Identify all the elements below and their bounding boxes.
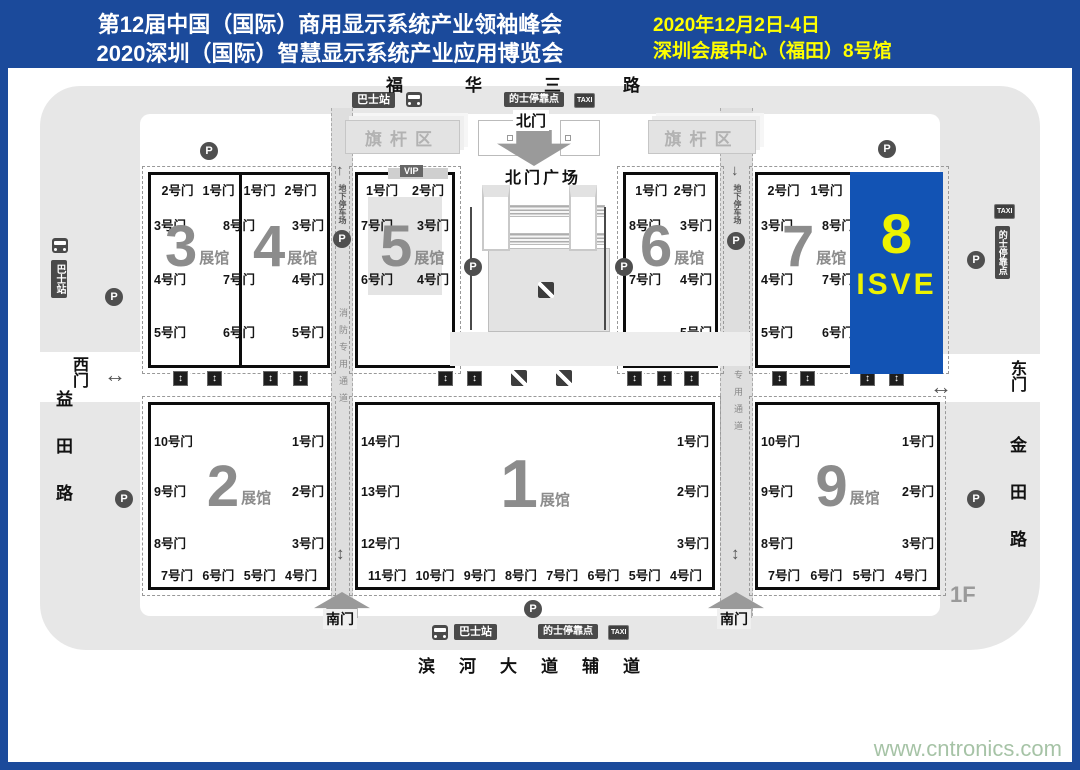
gate-label: 10号门 <box>416 565 455 584</box>
gate-label: 2号门 <box>674 180 706 199</box>
flag-area-west: 旗杆区 <box>345 120 460 154</box>
gate-label: 5号门 <box>853 565 885 584</box>
hall-2: 10号门 9号门 8号门 1号门 2号门 3号门 7号门 6号门 5号门 4号门… <box>148 402 330 590</box>
gate-row-top: 2号门 1号门 1号门 2号门 <box>157 180 321 199</box>
gate-label: 1号门 <box>677 431 709 450</box>
gate-label: 7号门 <box>161 565 193 584</box>
gate-row-bottom: 7号门 6号门 5号门 4号门 <box>161 565 317 584</box>
gate-label: 9号门 <box>464 565 496 584</box>
gate-label: 2号门 <box>285 180 317 199</box>
parking-icon: P <box>464 258 482 276</box>
escalator-icon <box>538 282 554 298</box>
hall-8-highlight: 8 ISVE <box>850 172 943 374</box>
hall-block-3-4: 2号门 1号门 1号门 2号门 3号门 4号门 5号门 8号门 7号门 6号门 … <box>148 172 330 368</box>
gate-label: 1号门 <box>292 431 324 450</box>
escalator-icon <box>511 370 527 386</box>
street-west: 益田路 <box>50 390 75 531</box>
elevator-icon: ↕ <box>657 371 672 386</box>
venue-map: ↑ 地下停车场 P 消防专用通道 ↕ ↓ 地下停车场 P 消防专用通道 ↕ 北门… <box>8 68 1072 762</box>
gate-row-bottom: 7号门 6号门 5号门 4号门 <box>768 565 927 584</box>
gate-label: 6号门 <box>587 565 619 584</box>
gate-label: 4号门 <box>895 565 927 584</box>
gate-row-bottom: 11号门 10号门 9号门 8号门 7号门 6号门 5号门 4号门 <box>368 565 702 584</box>
gate-row-top: 1号门 2号门 <box>632 180 709 199</box>
parking-icon: P <box>967 490 985 508</box>
plaza-base <box>450 332 750 366</box>
elevator-icon: ↕ <box>207 371 222 386</box>
taxi-icon: TAXI <box>994 204 1015 219</box>
parking-icon: P <box>967 251 985 269</box>
gate-label: 9号门 <box>154 481 186 500</box>
street-south: 滨河大道辅道 <box>418 652 664 677</box>
gate-label: 2号门 <box>902 481 934 500</box>
gate-row-top: 1号门 2号门 <box>366 180 444 199</box>
escalator-icon <box>556 370 572 386</box>
fire-lane-label: 消防专用通道 <box>337 308 350 410</box>
plaza-tower <box>569 185 597 251</box>
bus-icon <box>52 238 68 253</box>
elevator-icon: ↕ <box>627 371 642 386</box>
gate-label: 4号门 <box>292 269 324 288</box>
gate-label: 8号门 <box>154 533 186 552</box>
gate-label: 1号门 <box>902 431 934 450</box>
west-gate-label: 西门 <box>66 356 90 388</box>
parking-icon: P <box>727 232 745 250</box>
gate-label: 3号门 <box>902 533 934 552</box>
hall-9: 10号门 9号门 8号门 1号门 2号门 3号门 7号门 6号门 5号门 4号门… <box>755 402 940 590</box>
hall-6-label: 6展馆 <box>640 223 704 271</box>
gate-label: 8号门 <box>761 533 793 552</box>
gate-label: 2号门 <box>162 180 194 199</box>
vip-badge: VIP <box>400 165 423 177</box>
elevator-icon: ↕ <box>173 371 188 386</box>
gate-label: 7号门 <box>546 565 578 584</box>
gate-label: 5号门 <box>761 322 793 341</box>
event-date: 2020年12月2日-4日 <box>653 13 892 39</box>
east-gate-arrow-icon: ↔ <box>930 374 952 400</box>
gate-label: 6号门 <box>202 565 234 584</box>
taxi-stop-badge: 的士停靠点 <box>538 624 598 639</box>
event-venue: 深圳会展中心（福田）8号馆 <box>653 39 892 65</box>
gate-label: 2号门 <box>768 180 800 199</box>
gate-label: 9号门 <box>761 481 793 500</box>
taxi-icon: TAXI <box>608 625 629 640</box>
flag-area-east: 旗杆区 <box>648 120 756 154</box>
hall-2-label: 2展馆 <box>207 463 271 511</box>
elevator-icon: ↕ <box>684 371 699 386</box>
hall-4-label: 4展馆 <box>253 223 317 271</box>
gate-label: 14号门 <box>361 431 400 450</box>
gate-label: 4号门 <box>680 269 712 288</box>
gate-label: 13号门 <box>361 481 400 500</box>
gate-label: 4号门 <box>417 269 449 288</box>
gate-label: 2号门 <box>677 481 709 500</box>
gate-label: 1号门 <box>244 180 276 199</box>
gate-label: 1号门 <box>635 180 667 199</box>
hall-1: 14号门 13号门 12号门 1号门 2号门 3号门 11号门 10号门 9号门… <box>355 402 715 590</box>
underground-parking-label: 地下停车场 <box>732 184 743 224</box>
bus-station-badge: 巴士站 <box>454 624 497 640</box>
hall-5: VIP 1号门 2号门 7号门 6号门 3号门 4号门 5展馆 <box>355 172 455 368</box>
parking-icon: P <box>333 230 351 248</box>
gate-label: 5号门 <box>292 322 324 341</box>
elevator-icon: ↕ <box>293 371 308 386</box>
north-gate-label: 北门 <box>513 110 549 131</box>
south-gate-label: 南门 <box>717 609 751 629</box>
parking-icon: P <box>615 258 633 276</box>
gate-label: 5号门 <box>154 322 186 341</box>
gate-label: 7号门 <box>223 269 255 288</box>
elevator-icon: ↕ <box>467 371 482 386</box>
up-arrow-icon: ↑ <box>336 162 344 179</box>
gate-label: 5号门 <box>244 565 276 584</box>
parking-icon: P <box>115 490 133 508</box>
hall-8-number: 8 <box>881 206 912 262</box>
updown-arrow-icon: ↕ <box>336 544 345 564</box>
event-title-line2: 2020深圳（国际）智慧显示系统产业应用博览会 <box>40 39 620 68</box>
gate-row-top: 2号门 1号门 <box>762 180 848 199</box>
hall-8-isve-label: ISVE <box>856 268 936 302</box>
gate-label: 6号门 <box>810 565 842 584</box>
gate-label: 3号门 <box>677 533 709 552</box>
exhibition-map-page: 第12届中国（国际）商用显示系统产业领袖峰会 2020深圳（国际）智慧显示系统产… <box>0 0 1080 770</box>
gate-label: 3号门 <box>292 533 324 552</box>
gate-label: 1号门 <box>811 180 843 199</box>
underground-parking-label: 地下停车场 <box>337 184 348 224</box>
event-title: 第12届中国（国际）商用显示系统产业领袖峰会 2020深圳（国际）智慧显示系统产… <box>40 10 620 68</box>
hall-7-label: 7展馆 <box>782 223 846 271</box>
hall-3-label: 3展馆 <box>165 223 229 271</box>
parking-icon: P <box>200 142 218 160</box>
bus-icon <box>432 625 448 640</box>
elevator-icon: ↕ <box>800 371 815 386</box>
gate-label: 11号门 <box>368 565 406 584</box>
elevator-icon: ↕ <box>438 371 453 386</box>
elevator-icon: ↕ <box>772 371 787 386</box>
down-arrow-icon: ↓ <box>731 162 739 179</box>
hall-1-label: 1展馆 <box>500 457 570 513</box>
street-north: 福华三路 <box>386 71 702 96</box>
gate-label: 12号门 <box>361 533 400 552</box>
gate-label: 10号门 <box>154 431 193 450</box>
south-gate-label: 南门 <box>323 609 357 629</box>
elevator-icon: ↕ <box>263 371 278 386</box>
gate-label: 1号门 <box>203 180 235 199</box>
gate-label: 4号门 <box>285 565 317 584</box>
plaza-wall <box>604 207 606 330</box>
gate-label: 6号门 <box>223 322 255 341</box>
hall-block-7-8: 2号门 1号门 3号门 4号门 5号门 8号门 7号门 6号门 7展馆 8 IS… <box>755 172 943 368</box>
parking-icon: P <box>878 140 896 158</box>
floor-label: 1F <box>950 582 976 608</box>
plaza-tower <box>482 185 510 251</box>
east-gate-label: 东门 <box>1004 360 1028 392</box>
gate-label: 1号门 <box>366 180 398 199</box>
north-gate-booth <box>560 120 600 156</box>
watermark: www.cntronics.com <box>874 736 1062 762</box>
hall-9-label: 9展馆 <box>815 463 879 511</box>
parking-icon: P <box>524 600 542 618</box>
updown-arrow-icon: ↕ <box>731 544 740 564</box>
event-title-line1: 第12届中国（国际）商用显示系统产业领袖峰会 <box>40 10 620 39</box>
gate-label: 8号门 <box>505 565 537 584</box>
gate-label: 10号门 <box>761 431 800 450</box>
street-east: 金田路 <box>1004 436 1029 577</box>
west-gate-arrow-icon: ↔ <box>104 362 126 388</box>
taxi-stop-badge: 的士停靠点 <box>995 226 1010 279</box>
parking-icon: P <box>105 288 123 306</box>
gate-label: 4号门 <box>670 565 702 584</box>
gate-label: 7号门 <box>768 565 800 584</box>
gate-label: 2号门 <box>412 180 444 199</box>
gate-label: 5号门 <box>629 565 661 584</box>
gate-label: 2号门 <box>292 481 324 500</box>
event-date-venue: 2020年12月2日-4日 深圳会展中心（福田）8号馆 <box>653 13 892 64</box>
hall-5-label: 5展馆 <box>380 223 444 271</box>
bus-station-badge: 巴士站 <box>51 260 67 298</box>
